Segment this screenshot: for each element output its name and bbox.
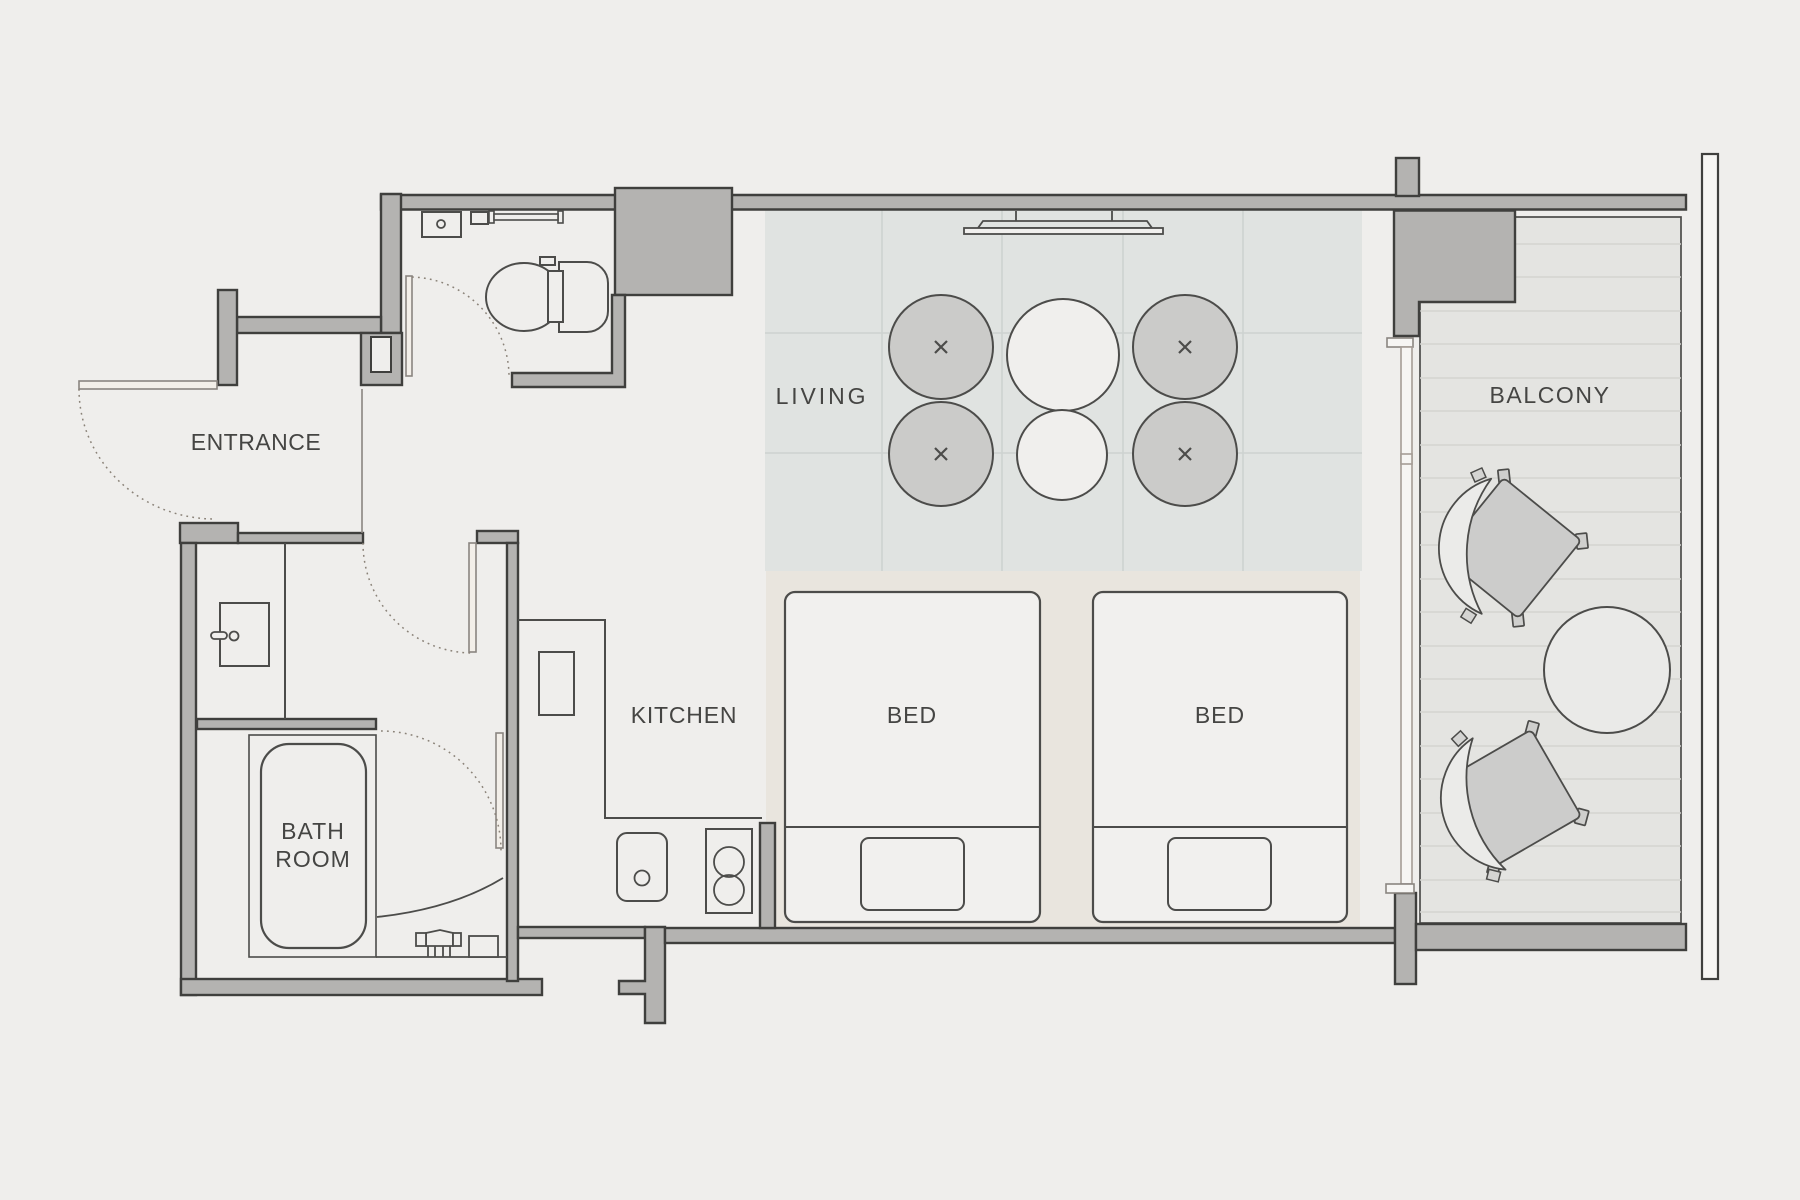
svg-text:BATH: BATH bbox=[281, 818, 345, 844]
svg-text:BED: BED bbox=[887, 702, 937, 728]
svg-text:BALCONY: BALCONY bbox=[1489, 382, 1610, 408]
svg-text:KITCHEN: KITCHEN bbox=[631, 702, 738, 728]
svg-text:LIVING: LIVING bbox=[776, 383, 869, 409]
svg-text:ROOM: ROOM bbox=[275, 846, 351, 872]
svg-text:ENTRANCE: ENTRANCE bbox=[191, 429, 322, 455]
svg-text:BED: BED bbox=[1195, 702, 1245, 728]
